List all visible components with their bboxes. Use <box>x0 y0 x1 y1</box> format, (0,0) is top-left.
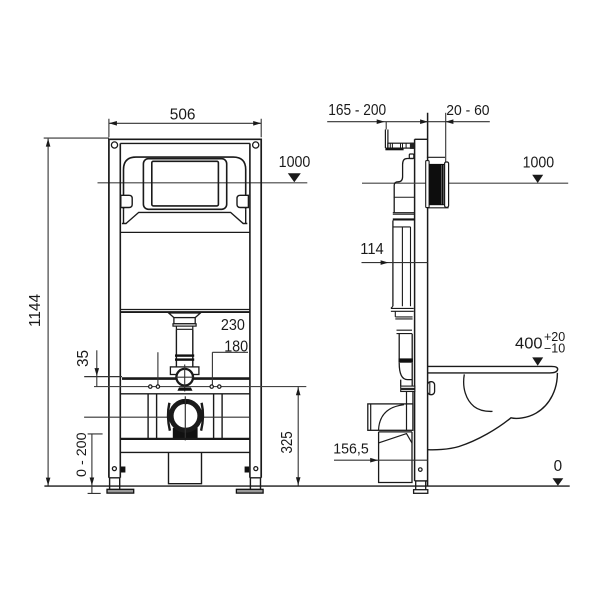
svg-text:156,5: 156,5 <box>333 440 368 457</box>
svg-text:114: 114 <box>360 241 383 258</box>
svg-text:325: 325 <box>279 431 296 453</box>
svg-text:165 - 200: 165 - 200 <box>328 102 386 119</box>
svg-text:180: 180 <box>224 338 248 355</box>
svg-text:1144: 1144 <box>27 294 44 327</box>
svg-text:0 - 200: 0 - 200 <box>73 432 89 477</box>
svg-text:−10: −10 <box>544 341 565 355</box>
svg-text:35: 35 <box>75 350 92 367</box>
svg-text:230: 230 <box>221 317 245 334</box>
svg-text:506: 506 <box>170 106 196 123</box>
svg-text:1000: 1000 <box>279 154 311 171</box>
svg-text:400: 400 <box>515 335 543 352</box>
svg-text:0: 0 <box>554 458 563 475</box>
svg-text:1000: 1000 <box>523 155 555 172</box>
svg-text:20 - 60: 20 - 60 <box>446 102 489 119</box>
